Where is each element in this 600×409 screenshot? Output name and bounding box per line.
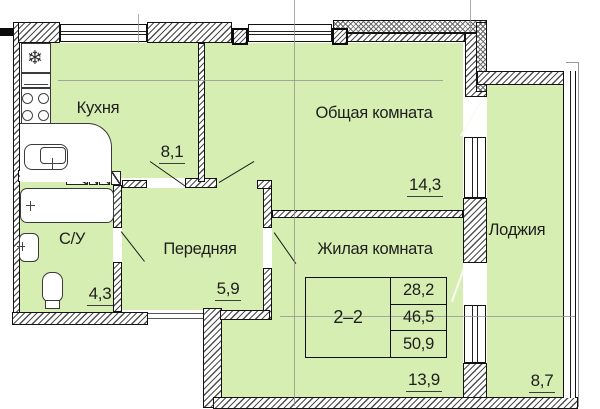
area-table-values: 28,2 46,5 50,9 [391, 278, 446, 357]
cabinet-shelf-line [24, 84, 48, 85]
axis-line [470, 0, 471, 30]
wall-stub [0, 28, 13, 36]
stove-burner [22, 110, 33, 121]
room-area-kitchen: 8,1 [155, 142, 189, 164]
window-common-loggia [464, 137, 486, 198]
vent-shaft [111, 171, 121, 185]
axis-line [58, 80, 443, 81]
area-table: 2–2 28,2 46,5 50,9 [305, 277, 447, 358]
toilet-icon [42, 272, 63, 302]
stove-burner [38, 110, 49, 121]
room-area-common-room: 14,3 [405, 175, 445, 197]
washbasin-tap [17, 246, 25, 247]
wall [257, 180, 272, 189]
room-label-living-room: Жилая комната [305, 240, 445, 259]
room-area-loggia: 8,7 [524, 371, 560, 393]
room-area-living-room: 13,9 [404, 370, 444, 392]
room-label-bathroom: С/У [50, 230, 94, 249]
bathtub-tap [26, 205, 35, 206]
wall [18, 22, 60, 43]
wall-loggia-top [477, 71, 565, 85]
wall [263, 188, 272, 228]
entrance-threshold [148, 318, 203, 319]
window-pier [332, 28, 348, 45]
floor-plan: ❄ Кухня 8,1 Общая комната 14,3 Передняя … [0, 0, 600, 409]
axis-line [294, 0, 295, 406]
wall [113, 185, 122, 228]
room-area-hallway: 5,9 [210, 279, 246, 301]
total-area-cell: 50,9 [391, 331, 446, 357]
room-label-loggia: Лоджия [485, 221, 549, 240]
toilet-tank [45, 300, 60, 309]
room-area-bathroom: 4,3 [82, 284, 118, 306]
wall-partition [198, 43, 205, 182]
wall [12, 312, 148, 325]
window-living-loggia [464, 305, 486, 363]
door-swing-loggia-upper [460, 99, 482, 136]
wall [272, 210, 463, 218]
loggia-outer-line [578, 62, 579, 407]
window-common-room [248, 24, 332, 42]
stove-burner [38, 93, 49, 104]
wall [220, 310, 270, 320]
room-label-kitchen: Кухня [60, 99, 136, 118]
axis-line [138, 14, 139, 43]
loggia-outer-line [566, 62, 579, 63]
wall [147, 22, 232, 43]
room-floor-living-room [222, 320, 272, 397]
window-pier [232, 28, 248, 45]
room-label-hallway: Передняя [150, 240, 250, 259]
room-floor-loggia [487, 85, 563, 397]
stove-burner [22, 93, 33, 104]
loggia-glazing [563, 71, 576, 398]
wall-pier [463, 198, 487, 263]
bathtub-tap [30, 201, 31, 211]
unit-number-cell: 2–2 [306, 278, 391, 357]
sink-tap [52, 158, 53, 170]
apartment-area-cell: 46,5 [391, 305, 446, 332]
window-kitchen [60, 24, 147, 42]
wall [333, 33, 465, 42]
wall [203, 308, 222, 408]
entrance-threshold [148, 313, 203, 314]
sink-tap [47, 163, 58, 164]
wall-insulation [333, 20, 487, 33]
snowflake-icon: ❄ [27, 49, 43, 68]
living-area-cell: 28,2 [391, 278, 446, 305]
room-label-common-room: Общая комната [308, 104, 440, 123]
wall-bottom [213, 397, 578, 409]
wall [122, 180, 147, 188]
sink-basin [40, 147, 66, 164]
washbasin-tap [22, 242, 23, 251]
kitchen-cabinet [21, 73, 51, 88]
